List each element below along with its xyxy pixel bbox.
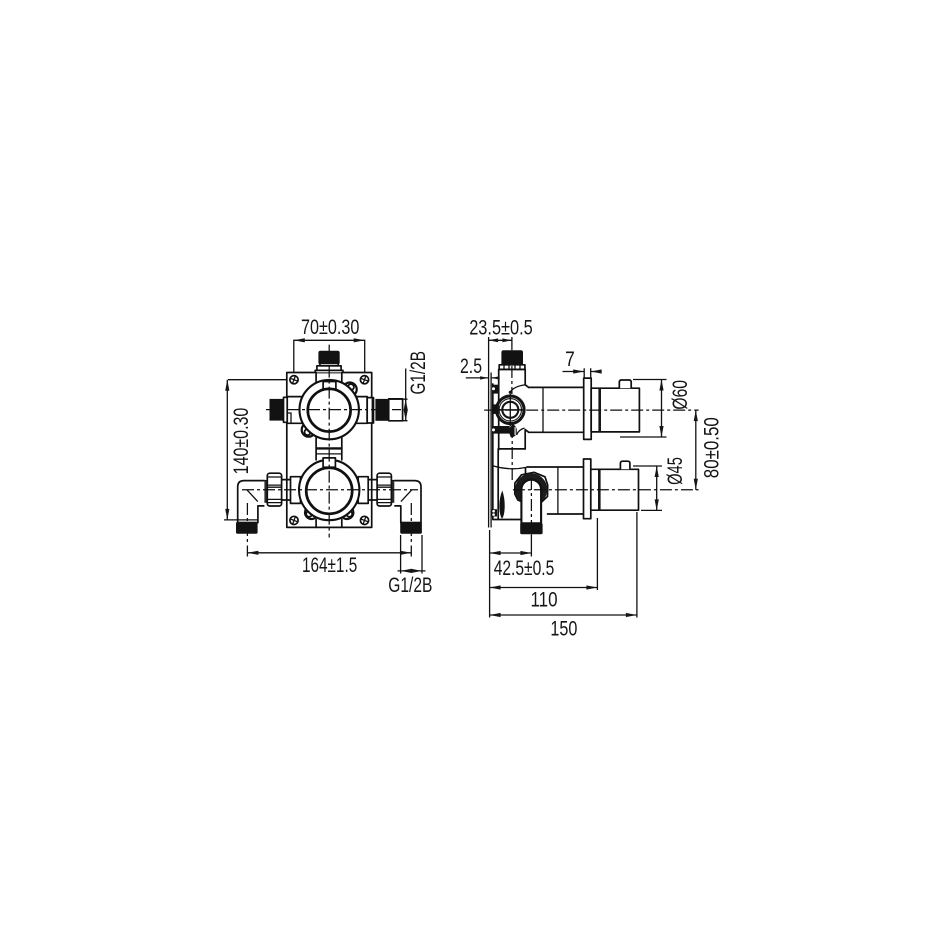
svg-text:110: 110: [531, 588, 558, 612]
svg-text:23.5±0.5: 23.5±0.5: [469, 315, 533, 339]
svg-text:2.5: 2.5: [460, 354, 482, 378]
svg-text:Ø60: Ø60: [668, 380, 692, 410]
svg-text:G1/2B: G1/2B: [388, 573, 432, 597]
svg-text:150: 150: [550, 617, 577, 641]
svg-text:80±0.50: 80±0.50: [700, 417, 724, 478]
svg-text:70±0.30: 70±0.30: [301, 315, 359, 339]
svg-text:G1/2B: G1/2B: [406, 351, 430, 394]
svg-text:164±1.5: 164±1.5: [302, 553, 357, 577]
svg-text:Ø45: Ø45: [663, 457, 687, 485]
svg-text:7: 7: [565, 347, 575, 371]
svg-text:42.5±0.5: 42.5±0.5: [494, 556, 555, 580]
svg-text:140±0.30: 140±0.30: [229, 408, 253, 475]
